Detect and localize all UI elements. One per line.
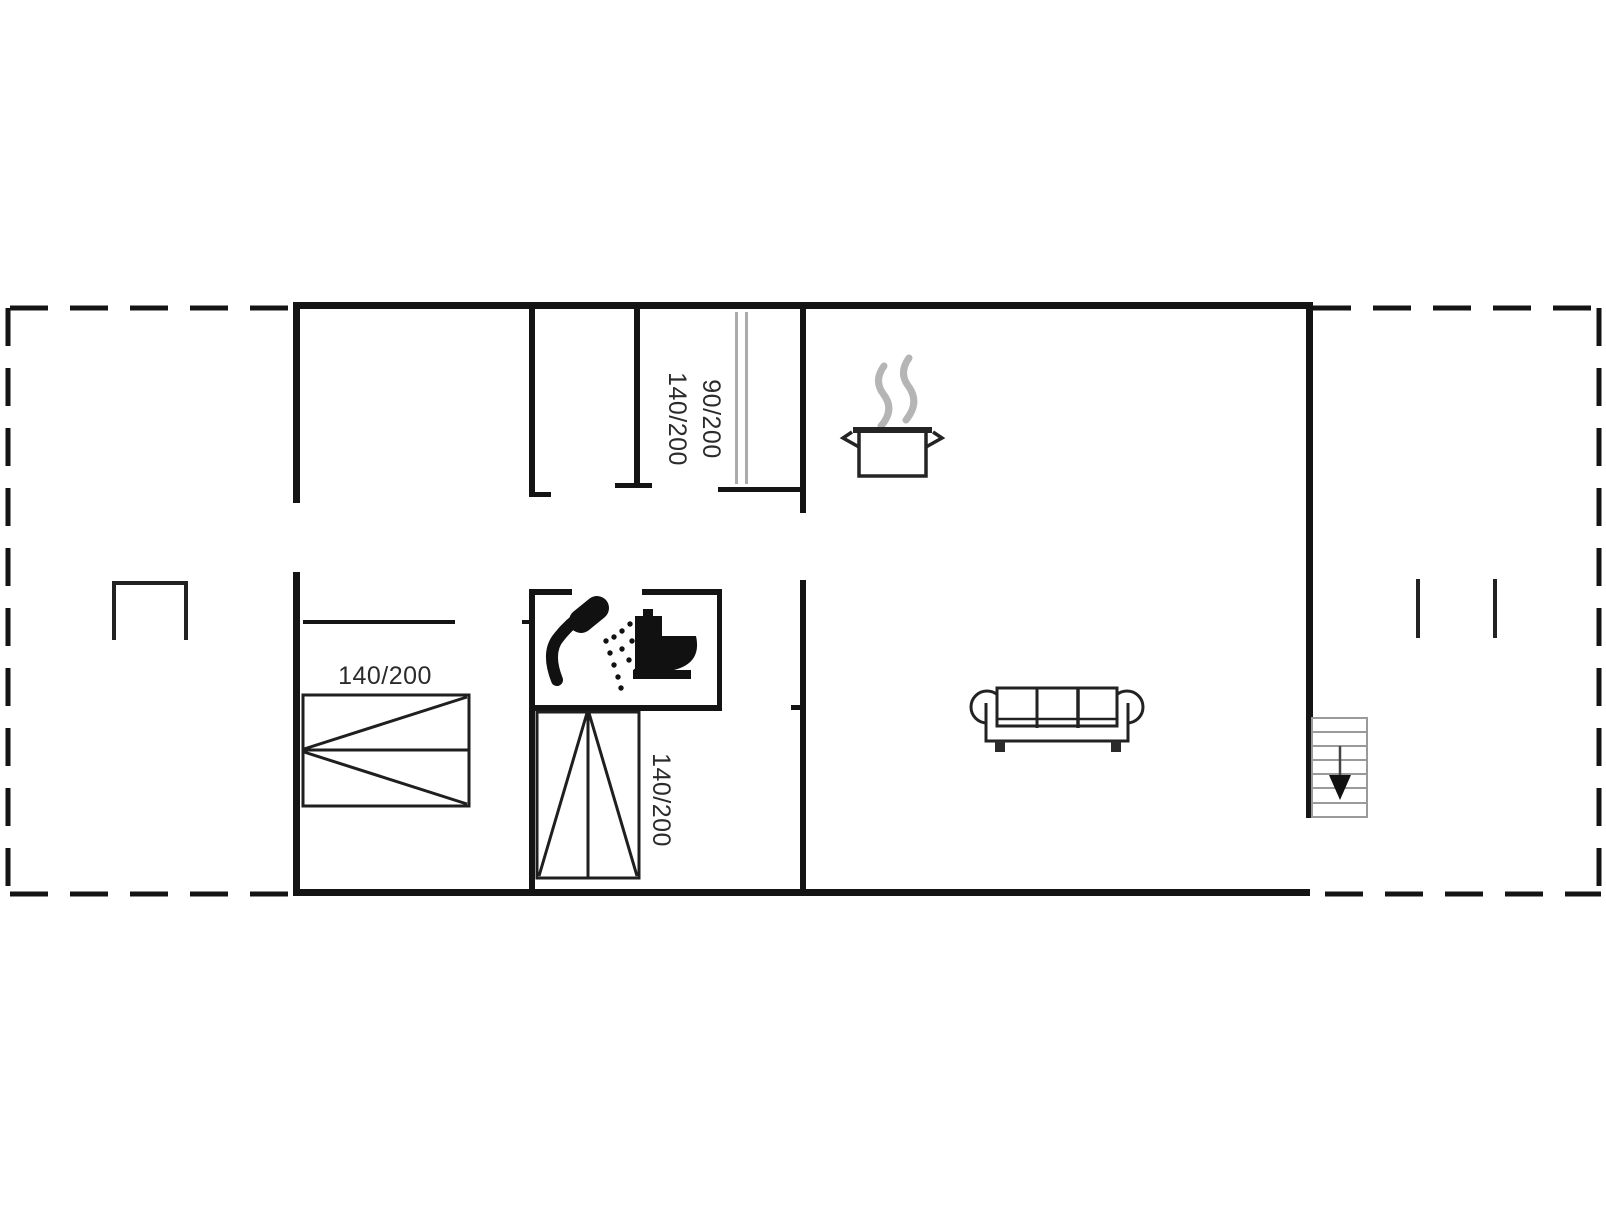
bed-left-icon [303,695,469,806]
floorplan-drawing [0,0,1606,1205]
interior-walls [303,309,806,896]
stairs-icon [1312,718,1367,817]
terrace-table [112,581,188,640]
steam-icon [879,358,914,426]
bed-middle-icon [537,712,639,878]
terrace-ticks [1416,579,1497,638]
hall-door-size-label: 90/200 140/200 [660,372,728,466]
bed-left-size-label: 140/200 [338,659,432,693]
hall-door-size-line1: 90/200 [694,372,728,466]
wardrobe-lines [735,312,748,484]
hall-door-size-line2: 140/200 [660,372,694,466]
sofa-icon [971,688,1143,752]
bed-middle-size-label: 140/200 [644,753,678,847]
cooking-pot-icon [843,429,942,476]
toilet-icon [633,609,697,679]
terrace-outline-left [8,308,293,894]
floorplan-canvas: 90/200 140/200 140/200 140/200 [0,0,1606,1205]
